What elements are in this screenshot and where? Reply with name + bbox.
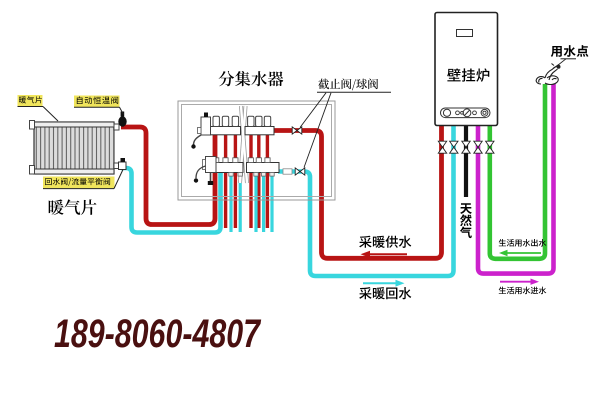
svg-text:189-8060-4807: 189-8060-4807: [54, 312, 261, 356]
